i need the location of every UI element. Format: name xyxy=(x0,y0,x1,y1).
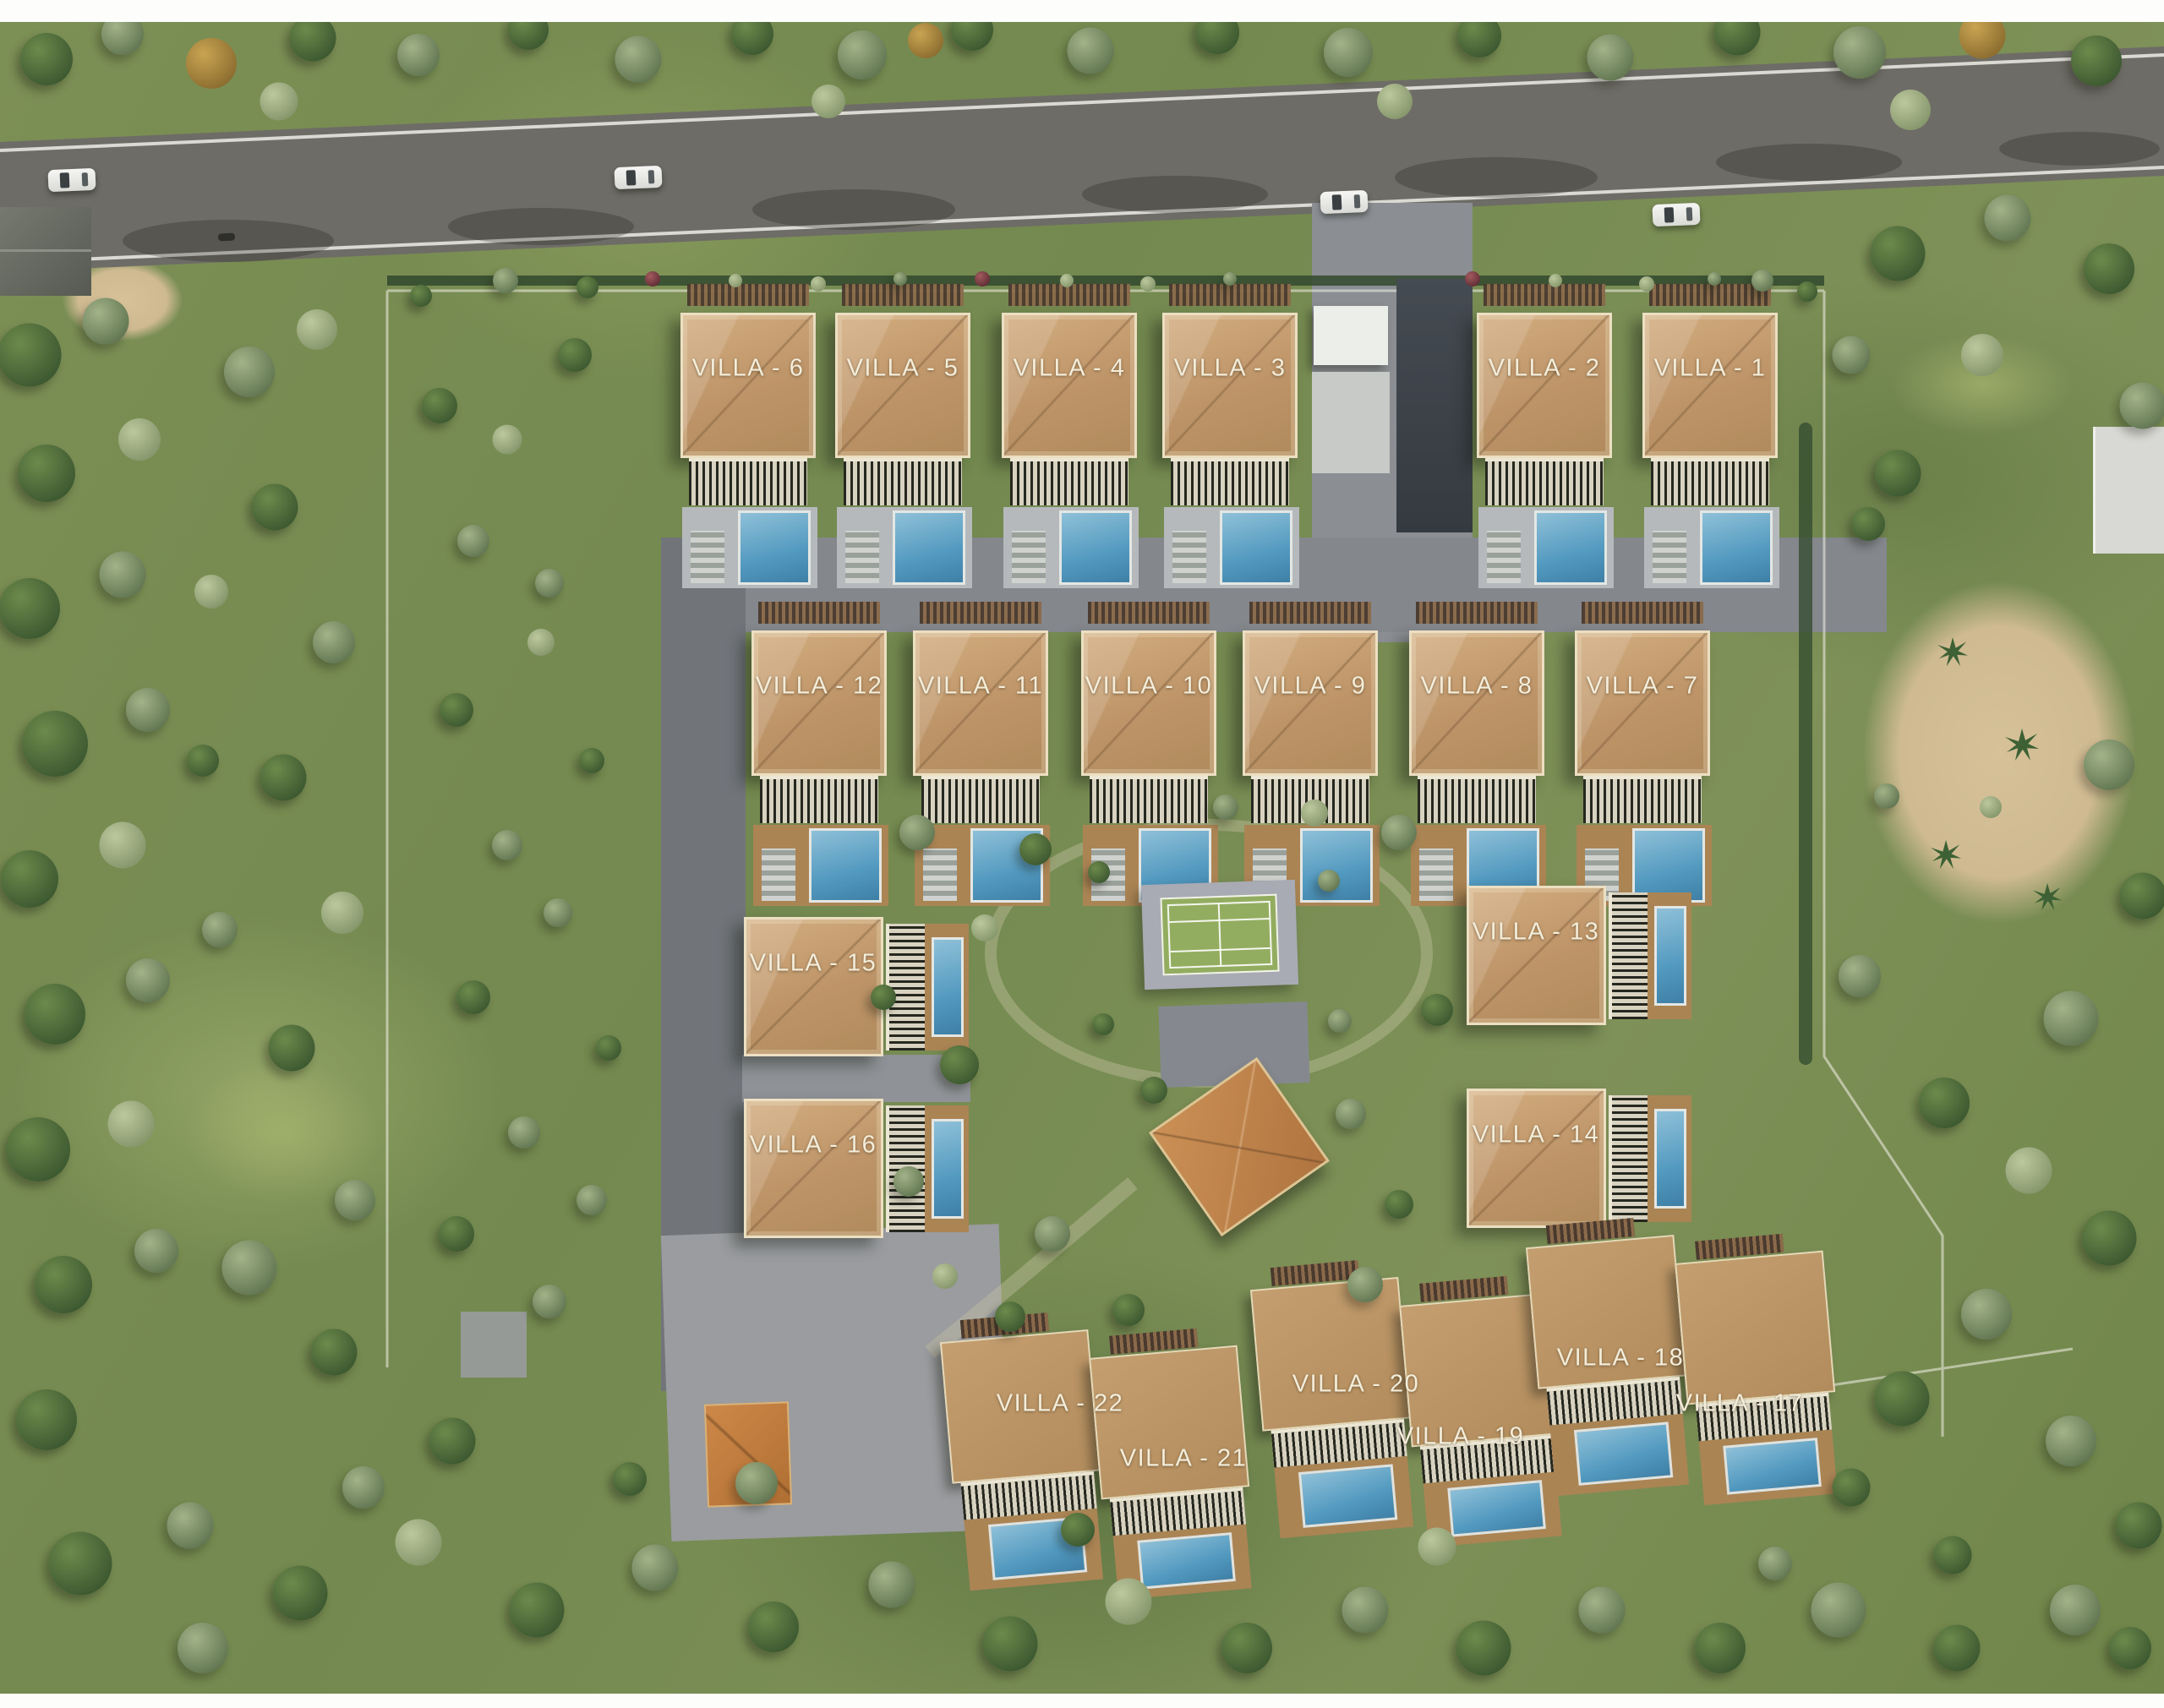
pergola xyxy=(1010,458,1128,505)
tree-icon xyxy=(311,1329,358,1376)
tree-icon xyxy=(2116,1503,2162,1549)
villa-4[interactable]: VILLA - 4 xyxy=(985,284,1154,597)
tree-icon xyxy=(194,575,228,608)
tennis-court-lines xyxy=(1167,901,1273,969)
gate-building xyxy=(1312,372,1390,473)
tree-icon xyxy=(1140,276,1156,292)
tree-icon xyxy=(1751,270,1773,292)
tree-icon xyxy=(1934,1536,1972,1574)
tree-icon xyxy=(893,272,907,286)
tree-icon xyxy=(1377,84,1413,119)
tree-icon xyxy=(1336,1099,1366,1129)
tree-icon xyxy=(1092,1013,1114,1035)
tree-icon xyxy=(535,569,564,598)
tree-icon xyxy=(492,830,522,860)
tree-icon xyxy=(493,425,522,455)
pool xyxy=(1654,906,1686,1006)
tree-icon xyxy=(932,1263,958,1289)
pergola xyxy=(1583,776,1702,823)
villa-roof xyxy=(1575,630,1710,776)
planter-box xyxy=(1416,602,1538,624)
villa-label: VILLA - 2 xyxy=(1489,355,1601,383)
tree-icon xyxy=(729,274,742,287)
tree-icon xyxy=(83,298,129,345)
pool xyxy=(932,1119,964,1219)
villa-block-20-19[interactable] xyxy=(1249,1253,1577,1566)
tree-icon xyxy=(1213,794,1238,820)
tennis-court xyxy=(1141,880,1298,990)
tree-icon xyxy=(25,984,85,1045)
planter-box xyxy=(920,602,1041,624)
tree-icon xyxy=(6,1117,70,1181)
villa-roof xyxy=(1250,1277,1411,1432)
tree-icon xyxy=(811,85,845,118)
tree-icon xyxy=(1980,796,2002,818)
villa-6[interactable]: VILLA - 6 xyxy=(664,284,833,597)
pool-stairs xyxy=(1419,849,1453,901)
tree-icon xyxy=(18,445,75,502)
tree-icon xyxy=(2050,1585,2101,1635)
villa-roof xyxy=(1162,313,1298,458)
tree-icon xyxy=(1223,272,1237,286)
tree-icon xyxy=(297,309,337,350)
villa-11[interactable]: VILLA - 11 xyxy=(896,602,1065,914)
tree-icon xyxy=(1961,1289,2012,1340)
planter-box xyxy=(1249,602,1371,624)
tree-icon xyxy=(1318,870,1340,892)
villa-roof xyxy=(1477,313,1612,458)
tree-icon xyxy=(2082,1211,2137,1266)
tree-icon xyxy=(1019,833,1052,865)
tree-icon xyxy=(321,892,363,934)
villa-roof xyxy=(680,313,816,458)
tree-icon xyxy=(893,1166,924,1197)
tree-icon xyxy=(1875,1372,1930,1427)
tree-icon xyxy=(35,1256,92,1313)
villa-15[interactable]: VILLA - 15 xyxy=(744,917,972,1061)
villa-roof xyxy=(1642,313,1778,458)
pool xyxy=(1220,510,1292,585)
neighbor-building xyxy=(2093,427,2164,554)
tree-icon xyxy=(613,1462,647,1496)
tree-icon xyxy=(1342,1587,1389,1634)
flower-bush-icon xyxy=(1465,271,1480,286)
tree-icon xyxy=(1985,195,2031,242)
tree-icon xyxy=(995,1301,1025,1332)
planter-box xyxy=(1649,284,1771,306)
pool xyxy=(1447,1480,1546,1537)
pool xyxy=(932,937,964,1037)
tree-icon xyxy=(1961,334,2003,376)
pool-stairs xyxy=(923,849,957,901)
neighbor-house xyxy=(0,207,91,296)
pergola xyxy=(921,776,1040,823)
tree-icon xyxy=(579,748,604,773)
tree-icon xyxy=(2120,383,2164,429)
tree-icon xyxy=(971,914,998,941)
pool xyxy=(1654,1109,1686,1209)
tree-icon xyxy=(0,578,60,639)
villa-label: VILLA - 18 xyxy=(1557,1345,1684,1372)
top-white-margin xyxy=(0,0,2164,22)
villa-label: VILLA - 4 xyxy=(1014,355,1126,383)
tree-icon xyxy=(397,34,440,76)
villa-roof xyxy=(751,630,887,776)
tree-icon xyxy=(1758,1547,1792,1580)
villa-label: VILLA - 12 xyxy=(756,673,883,701)
villa-label: VILLA - 19 xyxy=(1397,1423,1524,1451)
tree-icon xyxy=(16,1389,77,1450)
villa-roof xyxy=(1675,1251,1835,1405)
tree-icon xyxy=(838,30,887,79)
car-icon xyxy=(47,168,96,192)
villa-7[interactable]: VILLA - 7 xyxy=(1558,602,1727,914)
tree-icon xyxy=(100,552,146,598)
tree-icon xyxy=(1851,507,1885,541)
tree-icon xyxy=(313,621,355,663)
tree-icon xyxy=(1,850,58,908)
villa-16[interactable]: VILLA - 16 xyxy=(744,1099,972,1242)
tree-icon xyxy=(1934,1625,1981,1672)
tree-icon xyxy=(527,629,555,656)
tree-icon xyxy=(1324,28,1373,77)
tree-icon xyxy=(1112,1294,1145,1326)
villa-label: VILLA - 5 xyxy=(847,355,959,383)
villa-2[interactable]: VILLA - 2 xyxy=(1460,284,1629,597)
bottom-white-margin xyxy=(0,1694,2164,1708)
tree-icon xyxy=(2084,243,2134,294)
tree-icon xyxy=(429,1418,476,1465)
villa-label: VILLA - 1 xyxy=(1654,355,1767,383)
tree-icon xyxy=(983,1617,1038,1672)
tree-icon xyxy=(871,985,896,1010)
tree-icon xyxy=(100,822,146,869)
villa-8[interactable]: VILLA - 8 xyxy=(1392,602,1561,914)
pool-stairs xyxy=(691,531,724,583)
planter-box xyxy=(1484,284,1605,306)
tree-icon xyxy=(187,745,219,777)
tree-icon xyxy=(811,276,826,292)
pool-stairs xyxy=(1653,531,1686,583)
tree-icon xyxy=(108,1101,155,1148)
tree-icon xyxy=(558,338,592,372)
tree-icon xyxy=(1456,1621,1511,1676)
tree-icon xyxy=(456,980,490,1014)
tree-icon xyxy=(1221,1623,1272,1673)
tree-icon xyxy=(273,1566,328,1621)
pool xyxy=(738,510,811,585)
tree-icon xyxy=(1708,272,1721,286)
villa-label: VILLA - 14 xyxy=(1473,1121,1599,1149)
tree-icon xyxy=(1421,994,1453,1026)
villa-roof xyxy=(1243,630,1378,776)
pool-stairs xyxy=(762,849,795,901)
tree-icon xyxy=(1695,1623,1746,1673)
pool xyxy=(809,828,882,903)
pool xyxy=(1723,1438,1822,1495)
tree-icon xyxy=(508,1116,540,1149)
tree-icon xyxy=(422,388,457,423)
villa-14[interactable]: VILLA - 14 xyxy=(1467,1089,1695,1232)
car-icon xyxy=(1320,190,1368,214)
villa-label: VILLA - 8 xyxy=(1421,673,1533,701)
tree-icon xyxy=(1061,1513,1095,1547)
villa-roof xyxy=(1467,1089,1606,1228)
villa-12[interactable]: VILLA - 12 xyxy=(735,602,904,914)
villa-roof xyxy=(835,313,970,458)
flower-bush-icon xyxy=(975,271,990,286)
tree-icon xyxy=(202,912,238,947)
villa-label: VILLA - 20 xyxy=(1292,1371,1419,1399)
villa-roof xyxy=(1089,1345,1249,1500)
tree-icon xyxy=(335,1180,375,1220)
tree-icon xyxy=(899,815,935,850)
tree-icon xyxy=(260,83,298,121)
pergola xyxy=(1609,892,1648,1019)
pergola xyxy=(689,458,807,505)
tree-icon xyxy=(2109,1627,2151,1669)
villa-roof xyxy=(1409,630,1544,776)
tree-icon xyxy=(178,1623,228,1673)
tree-icon xyxy=(1839,955,1881,997)
tree-icon xyxy=(577,276,598,298)
villa-1[interactable]: VILLA - 1 xyxy=(1626,284,1795,597)
tree-icon xyxy=(440,693,473,727)
villa-label: VILLA - 21 xyxy=(1120,1445,1247,1473)
tree-icon xyxy=(342,1466,385,1509)
pool xyxy=(1059,510,1132,585)
villa-label: VILLA - 22 xyxy=(997,1390,1123,1418)
villa-label: VILLA - 6 xyxy=(692,355,805,383)
tree-icon xyxy=(252,484,298,531)
pool xyxy=(1298,1464,1397,1528)
villa-label: VILLA - 11 xyxy=(918,673,1043,701)
tree-icon xyxy=(1381,815,1417,850)
tree-icon xyxy=(1871,226,1926,281)
pergola xyxy=(1609,1095,1648,1222)
tree-icon xyxy=(544,898,572,927)
pergola xyxy=(1651,458,1769,505)
tree-icon xyxy=(1385,1190,1413,1219)
tree-icon xyxy=(908,23,943,58)
tree-icon xyxy=(1833,336,1871,374)
tree-icon xyxy=(410,285,432,307)
tree-icon xyxy=(1797,281,1817,302)
pergola xyxy=(1090,776,1208,823)
tree-icon xyxy=(748,1602,799,1652)
tree-icon xyxy=(126,688,170,732)
tree-icon xyxy=(1328,1009,1352,1033)
villa-roof xyxy=(744,1099,883,1238)
tree-icon xyxy=(1579,1587,1626,1634)
tree-icon xyxy=(396,1520,442,1566)
planter-box xyxy=(842,284,964,306)
pergola xyxy=(844,458,962,505)
tree-icon xyxy=(1549,274,1562,287)
villa-label: VILLA - 16 xyxy=(750,1132,877,1160)
tree-icon xyxy=(439,1216,474,1252)
pergola xyxy=(1418,776,1536,823)
tree-icon xyxy=(2006,1148,2052,1194)
pool xyxy=(1700,510,1773,585)
pergola xyxy=(1171,458,1289,505)
tree-icon xyxy=(260,755,307,801)
tree-icon xyxy=(735,1462,778,1504)
pool xyxy=(1137,1532,1236,1590)
planter-box xyxy=(1008,284,1130,306)
tree-icon xyxy=(167,1503,214,1549)
tree-icon xyxy=(1035,1216,1070,1252)
villa-3[interactable]: VILLA - 3 xyxy=(1145,284,1314,597)
tree-icon xyxy=(126,958,170,1002)
tree-icon xyxy=(615,36,662,83)
tree-icon xyxy=(510,1583,565,1638)
villa-roof xyxy=(1467,886,1606,1025)
planter-box xyxy=(1088,602,1210,624)
gate-canopy xyxy=(1314,306,1388,365)
tree-icon xyxy=(940,1045,979,1084)
villa-label: VILLA - 15 xyxy=(750,950,877,978)
tree-icon xyxy=(1060,274,1074,287)
tree-icon xyxy=(1088,861,1110,883)
tree-icon xyxy=(632,1545,679,1591)
tree-icon xyxy=(20,33,73,85)
villa-roof xyxy=(1081,630,1216,776)
tree-icon xyxy=(1874,783,1899,809)
planter-box xyxy=(1582,602,1703,624)
tree-icon xyxy=(2071,35,2122,86)
tree-icon xyxy=(1639,276,1654,292)
tree-icon xyxy=(0,324,62,387)
tree-icon xyxy=(1140,1077,1167,1104)
tree-icon xyxy=(533,1285,566,1318)
tree-icon xyxy=(1833,1469,1871,1507)
villa-label: VILLA - 13 xyxy=(1473,919,1599,947)
pool xyxy=(1300,828,1373,903)
flower-bush-icon xyxy=(645,271,660,286)
villa-9[interactable]: VILLA - 9 xyxy=(1226,602,1395,914)
villa-label: VILLA - 10 xyxy=(1085,673,1212,701)
villa-label: VILLA - 9 xyxy=(1254,673,1367,701)
pool-stairs xyxy=(1012,531,1046,583)
masterplan-canvas: VILLA - 6 VILLA - 5 VILLA - 4 VILLA - 3 … xyxy=(0,0,2164,1708)
tree-icon xyxy=(1833,26,1886,79)
pool xyxy=(1574,1422,1673,1486)
villa-label: VILLA - 7 xyxy=(1587,673,1699,701)
planter-box xyxy=(758,602,880,624)
tree-icon xyxy=(1919,1078,1970,1128)
tree-icon xyxy=(134,1229,178,1273)
tree-icon xyxy=(493,268,518,293)
villa-roof xyxy=(1002,313,1137,458)
pergola xyxy=(760,776,878,823)
pool-stairs xyxy=(1487,531,1521,583)
tree-icon xyxy=(222,1241,277,1296)
tree-icon xyxy=(269,1025,315,1072)
pool xyxy=(893,510,965,585)
tree-icon xyxy=(1347,1267,1383,1302)
tree-icon xyxy=(2044,991,2099,1046)
tennis-court-surface xyxy=(1160,894,1279,976)
tree-icon xyxy=(224,347,275,397)
tree-icon xyxy=(1301,799,1328,827)
villa-5[interactable]: VILLA - 5 xyxy=(818,284,987,597)
villa-label: VILLA - 17 xyxy=(1676,1390,1803,1418)
tree-icon xyxy=(49,1532,112,1596)
planter-box xyxy=(687,284,809,306)
tree-icon xyxy=(118,418,161,461)
pool-stairs xyxy=(1172,531,1206,583)
tree-icon xyxy=(869,1562,915,1608)
pool xyxy=(1534,510,1607,585)
tree-icon xyxy=(1068,28,1114,74)
tree-icon xyxy=(2084,739,2134,790)
villa-label: VILLA - 3 xyxy=(1174,355,1287,383)
planter-box xyxy=(1169,284,1291,306)
tree-icon xyxy=(577,1185,607,1215)
pergola xyxy=(1485,458,1604,505)
motorbike-icon xyxy=(218,233,235,242)
tree-icon xyxy=(22,711,88,777)
tree-icon xyxy=(1875,450,1921,497)
tree-icon xyxy=(1812,1583,1866,1638)
car-icon xyxy=(1652,203,1700,226)
tree-icon xyxy=(457,525,489,557)
tree-icon xyxy=(2046,1416,2096,1466)
villa-roof xyxy=(913,630,1048,776)
tree-icon xyxy=(1890,90,1931,130)
tree-icon xyxy=(596,1035,621,1061)
villa-roof xyxy=(744,917,883,1056)
tree-icon xyxy=(186,38,237,89)
car-icon xyxy=(614,166,662,189)
villa-13[interactable]: VILLA - 13 xyxy=(1467,886,1695,1029)
pool-stairs xyxy=(845,531,879,583)
tree-icon xyxy=(1587,35,1634,81)
tree-icon xyxy=(1106,1579,1152,1625)
tree-icon xyxy=(2120,873,2164,919)
tree-icon xyxy=(1418,1528,1456,1566)
